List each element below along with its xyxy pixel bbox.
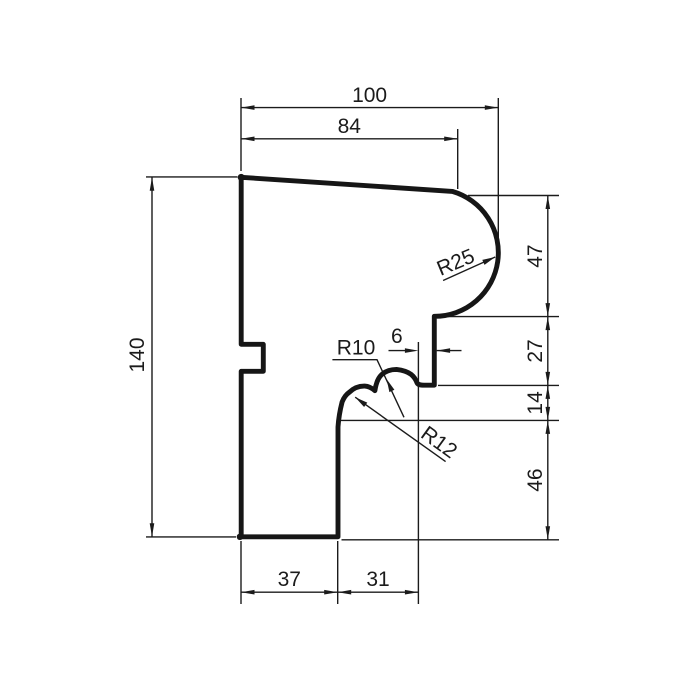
svg-text:47: 47 bbox=[524, 244, 547, 267]
svg-text:14: 14 bbox=[524, 391, 547, 415]
svg-text:R10: R10 bbox=[337, 336, 376, 359]
svg-text:27: 27 bbox=[524, 339, 547, 362]
svg-text:84: 84 bbox=[338, 115, 362, 138]
svg-text:6: 6 bbox=[391, 325, 403, 348]
svg-text:100: 100 bbox=[352, 84, 387, 107]
svg-text:46: 46 bbox=[524, 468, 547, 491]
svg-text:140: 140 bbox=[126, 337, 149, 372]
svg-text:37: 37 bbox=[278, 568, 301, 591]
svg-text:31: 31 bbox=[366, 568, 389, 591]
